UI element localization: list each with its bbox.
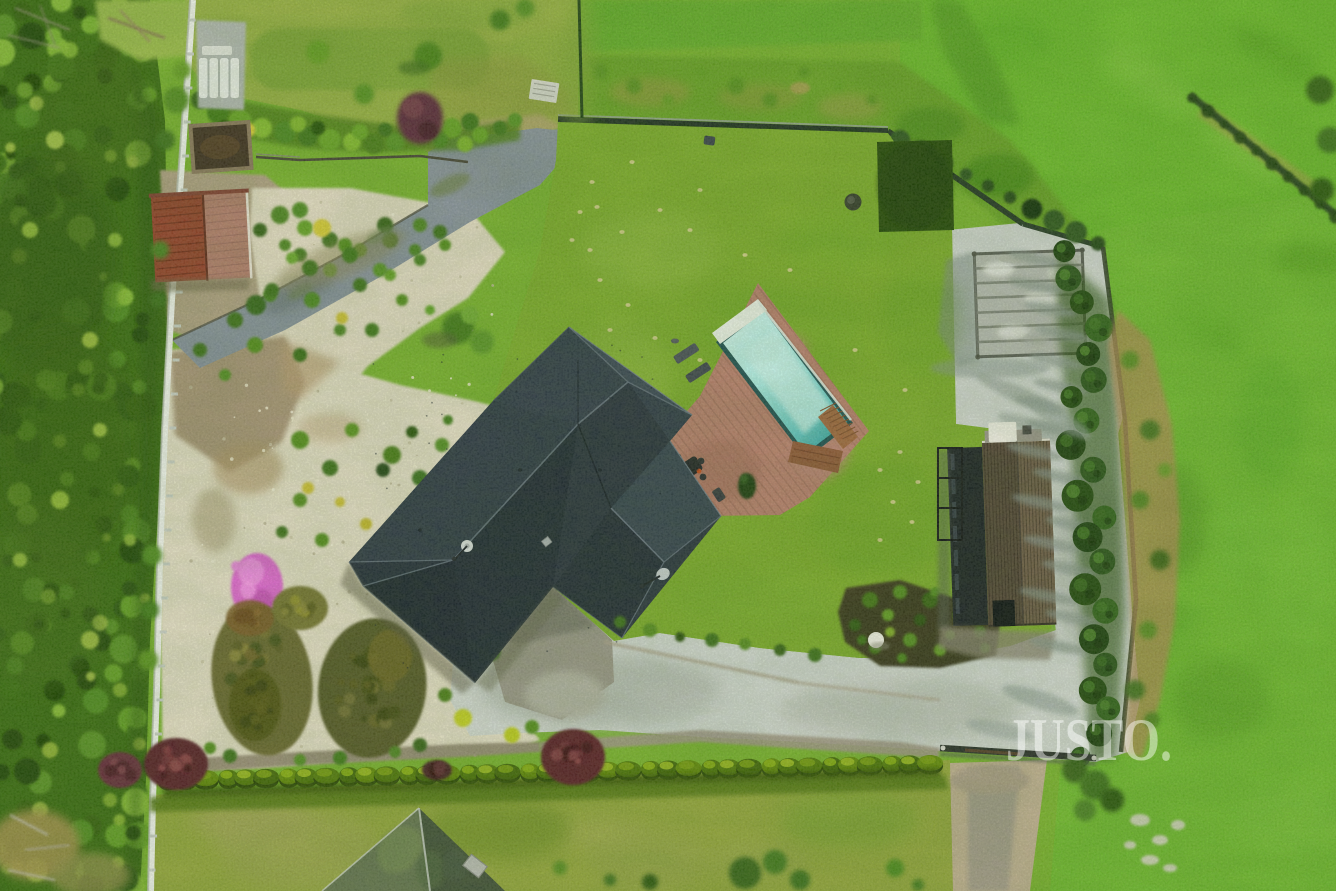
svg-text:JUSTO.: JUSTO. <box>1006 707 1172 773</box>
